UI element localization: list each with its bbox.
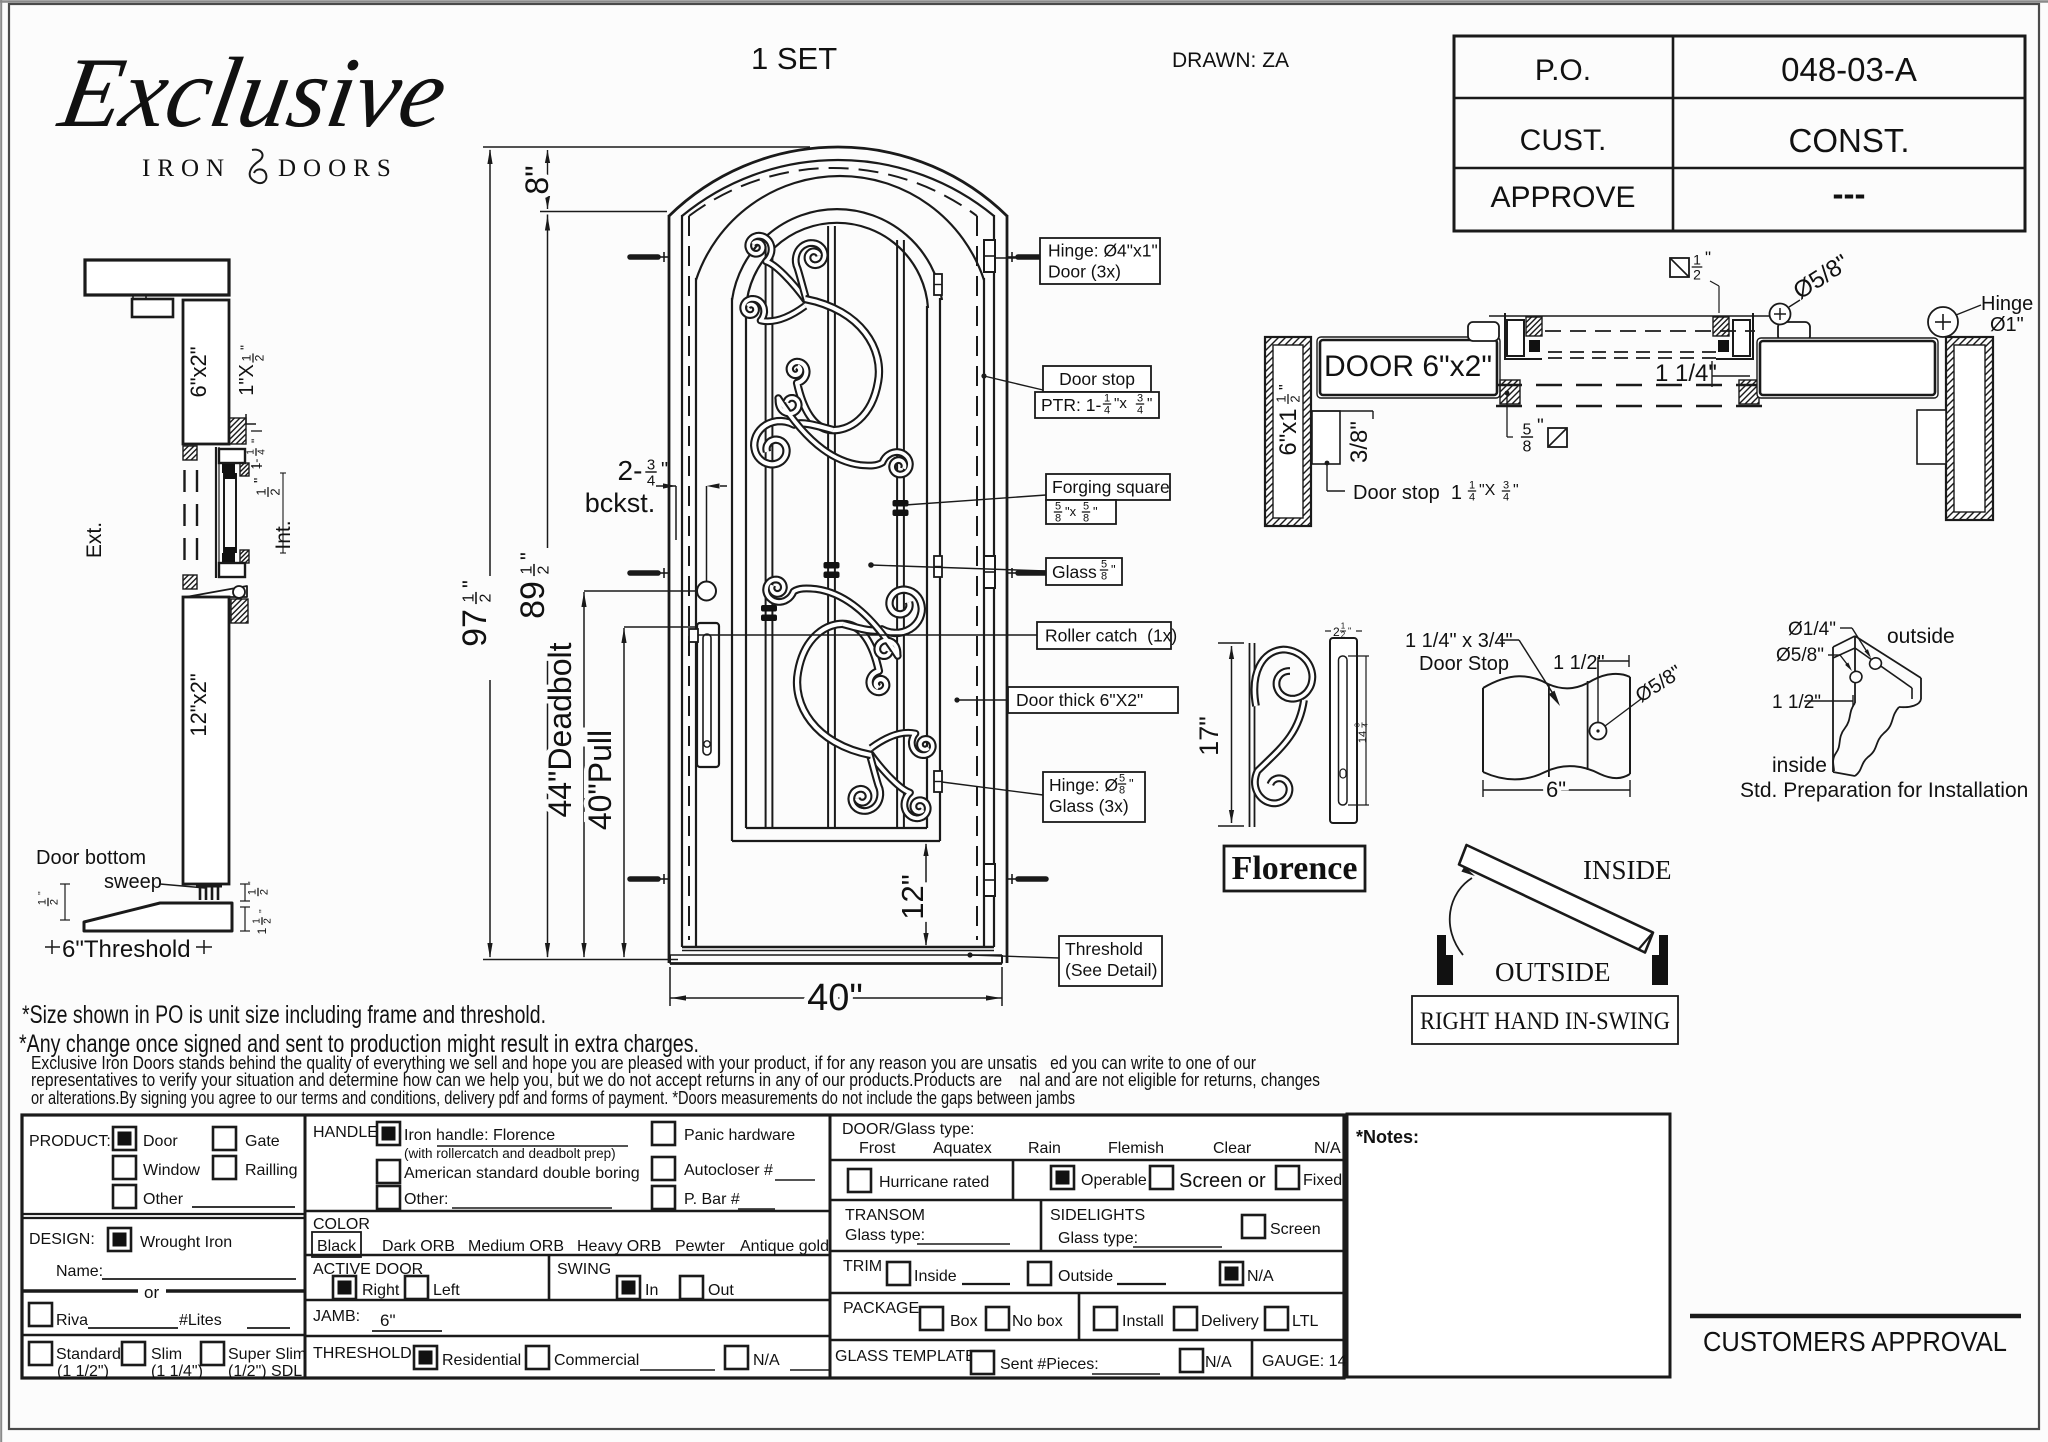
- svg-text:": ": [1537, 416, 1544, 437]
- svg-text:Door: Door: [143, 1133, 178, 1150]
- svg-text:Exclusive: Exclusive: [50, 37, 455, 148]
- svg-text:Aquatex: Aquatex: [933, 1140, 992, 1157]
- svg-text:PRODUCT:: PRODUCT:: [29, 1133, 111, 1150]
- svg-text:TRIM: TRIM: [843, 1258, 882, 1275]
- svg-text:5: 5: [1101, 559, 1107, 571]
- svg-text:"X: "X: [1479, 482, 1496, 499]
- svg-text:Screen or: Screen or: [1179, 1170, 1266, 1192]
- svg-text:8": 8": [519, 165, 555, 194]
- svg-text:Name:: Name:: [56, 1263, 103, 1280]
- svg-text:2: 2: [536, 565, 553, 574]
- svg-text:5: 5: [1083, 501, 1089, 513]
- svg-text:44"Deadbolt: 44"Deadbolt: [542, 642, 578, 817]
- svg-text:TRANSOM: TRANSOM: [845, 1207, 925, 1224]
- svg-text:": ": [251, 478, 268, 483]
- svg-text:Ext.: Ext.: [83, 522, 106, 558]
- svg-text:Flemish: Flemish: [1108, 1140, 1164, 1157]
- svg-text:2: 2: [1693, 267, 1701, 283]
- svg-text:1"X: 1"X: [236, 364, 258, 396]
- svg-text:4: 4: [647, 473, 655, 490]
- svg-text:bckst.: bckst.: [585, 488, 656, 518]
- svg-text:Black: Black: [317, 1238, 357, 1255]
- svg-text:(1 1/2"): (1 1/2"): [57, 1363, 109, 1380]
- svg-text:Right: Right: [362, 1282, 400, 1299]
- svg-text:P.O.: P.O.: [1535, 54, 1591, 87]
- svg-text:1 1/4": 1 1/4": [1655, 360, 1717, 387]
- svg-text:4: 4: [1363, 723, 1370, 727]
- svg-text:1: 1: [240, 354, 254, 361]
- svg-text:(1/2") SDL: (1/2") SDL: [228, 1363, 302, 1380]
- svg-text:DOOR 6"x2": DOOR 6"x2": [1324, 350, 1492, 383]
- svg-text:2: 2: [268, 488, 283, 495]
- svg-text:1: 1: [1693, 252, 1701, 268]
- svg-text:Box: Box: [950, 1313, 978, 1330]
- svg-text:8: 8: [1523, 439, 1532, 456]
- svg-text:*Size shown in PO is unit size: *Size shown in PO is unit size including…: [22, 1001, 546, 1029]
- svg-text:4: 4: [1503, 492, 1509, 504]
- svg-text:048-03-A: 048-03-A: [1781, 51, 1917, 88]
- svg-text:(See Detail): (See Detail): [1065, 960, 1157, 980]
- svg-text:4: 4: [257, 449, 268, 455]
- svg-text:2: 2: [478, 593, 495, 602]
- svg-text:1: 1: [247, 889, 259, 895]
- svg-text:*Notes:: *Notes:: [1356, 1127, 1419, 1147]
- svg-text:12": 12": [895, 874, 930, 920]
- svg-text:2: 2: [253, 354, 267, 361]
- svg-text:Standard: Standard: [56, 1346, 121, 1363]
- svg-text:CUSTOMERS APPROVAL: CUSTOMERS APPROVAL: [1703, 1326, 2007, 1357]
- svg-text:In: In: [645, 1282, 658, 1299]
- svg-text:N/A: N/A: [1247, 1268, 1274, 1285]
- svg-text:1: 1: [252, 918, 263, 924]
- svg-text:1: 1: [246, 449, 257, 455]
- svg-text:N/A: N/A: [753, 1352, 780, 1369]
- svg-text:Door stop 1: Door stop 1: [1353, 482, 1462, 504]
- svg-text:No box: No box: [1012, 1313, 1063, 1330]
- svg-text:"x: "x: [1065, 504, 1077, 519]
- svg-text:1: 1: [254, 488, 269, 495]
- svg-text:or alterations.By signing you: or alterations.By signing you agree to o…: [31, 1088, 1075, 1108]
- svg-text:3: 3: [647, 457, 655, 474]
- svg-text:'': '': [37, 891, 48, 895]
- svg-text:sweep: sweep: [104, 871, 162, 893]
- svg-text:COLOR: COLOR: [313, 1216, 370, 1233]
- svg-text:8: 8: [1083, 513, 1089, 525]
- svg-text:Glass type:: Glass type:: [845, 1227, 925, 1244]
- svg-text:": ": [1705, 248, 1711, 267]
- svg-text:DESIGN:: DESIGN:: [29, 1231, 95, 1248]
- svg-text:Outside: Outside: [1058, 1268, 1113, 1285]
- svg-text:1: 1: [1341, 622, 1346, 631]
- svg-text:1: 1: [461, 593, 478, 602]
- svg-text:GAUGE: 14: GAUGE: 14: [1262, 1353, 1347, 1370]
- svg-text:Door stop: Door stop: [1059, 369, 1135, 389]
- svg-text:DRAWN: ZA: DRAWN: ZA: [1172, 49, 1289, 72]
- svg-text:40": 40": [807, 977, 863, 1019]
- svg-text:1 1/2": 1 1/2": [1553, 652, 1605, 674]
- svg-text:2-: 2-: [618, 455, 643, 486]
- svg-text:P. Bar #: P. Bar #: [684, 1191, 740, 1208]
- svg-text:89: 89: [514, 581, 552, 619]
- svg-text:#Lites: #Lites: [179, 1312, 222, 1329]
- svg-text:Rain: Rain: [1028, 1140, 1061, 1157]
- svg-text:2: 2: [259, 889, 271, 895]
- svg-text:OUTSIDE: OUTSIDE: [1495, 957, 1611, 987]
- svg-text:HANDLE: HANDLE: [313, 1124, 378, 1141]
- svg-text:PACKAGE: PACKAGE: [843, 1300, 919, 1317]
- svg-text:(1 1/4"): (1 1/4"): [151, 1363, 203, 1380]
- svg-text:1 SET: 1 SET: [751, 41, 837, 76]
- svg-text:Ø1/4": Ø1/4": [1788, 619, 1836, 640]
- svg-text:'': '': [247, 881, 258, 885]
- svg-text:Door (3x): Door (3x): [1048, 262, 1121, 282]
- svg-text:": ": [1147, 395, 1152, 412]
- svg-text:Gate: Gate: [245, 1133, 280, 1150]
- svg-text:3/8": 3/8": [1346, 421, 1373, 463]
- svg-text:6": 6": [380, 1311, 396, 1330]
- svg-text:Ø5/8": Ø5/8": [1776, 645, 1824, 666]
- svg-text:Door Stop: Door Stop: [1419, 653, 1509, 675]
- svg-text:": ": [249, 439, 263, 443]
- svg-text:": ": [1513, 482, 1519, 499]
- svg-text:N/A: N/A: [1205, 1354, 1232, 1371]
- svg-text:Hinge: Hinge: [1981, 293, 2033, 315]
- svg-text:THRESHOLD: THRESHOLD: [313, 1345, 412, 1362]
- svg-text:6"Threshold: 6"Threshold: [62, 936, 191, 963]
- svg-text:8: 8: [1055, 513, 1061, 525]
- svg-text:Install: Install: [1122, 1313, 1164, 1330]
- svg-text:Glass (3x): Glass (3x): [1049, 796, 1129, 816]
- svg-text:1: 1: [255, 927, 269, 934]
- svg-text:Ø1": Ø1": [1990, 314, 2024, 336]
- svg-text:": ": [516, 552, 541, 560]
- svg-text:Other:: Other:: [404, 1191, 448, 1208]
- svg-text:Iron handle: Florence: Iron handle: Florence: [404, 1127, 555, 1144]
- svg-text:5: 5: [1119, 773, 1125, 785]
- svg-text:1 1/4" x 3/4": 1 1/4" x 3/4": [1405, 630, 1513, 652]
- svg-text:1: 1: [1469, 480, 1475, 492]
- svg-text:"x: "x: [1114, 395, 1127, 412]
- svg-text:N/A: N/A: [1314, 1140, 1341, 1157]
- svg-text:6"x1: 6"x1: [1275, 408, 1302, 455]
- svg-text:Railling: Railling: [245, 1162, 297, 1179]
- svg-text:representatives to verify your: representatives to verify your situation…: [31, 1070, 1320, 1090]
- svg-text:1: 1: [37, 899, 49, 905]
- svg-text:Clear: Clear: [1213, 1140, 1252, 1157]
- svg-text:Autocloser #: Autocloser #: [684, 1162, 773, 1179]
- svg-text:1 1/2": 1 1/2": [1772, 692, 1821, 713]
- svg-text:Hinge: Ø4"x1": Hinge: Ø4"x1": [1048, 241, 1158, 261]
- svg-text:6"x2": 6"x2": [186, 346, 211, 397]
- svg-text:SWING: SWING: [557, 1261, 611, 1278]
- svg-text:IRON: IRON: [142, 155, 231, 182]
- svg-text:SIDELIGHTS: SIDELIGHTS: [1050, 1207, 1145, 1224]
- svg-text:Antique gold: Antique gold: [740, 1238, 829, 1255]
- svg-text:": ": [458, 580, 483, 588]
- svg-text:": ": [1129, 776, 1134, 791]
- svg-text:Screen: Screen: [1270, 1221, 1321, 1238]
- svg-text:Door bottom: Door bottom: [36, 847, 146, 869]
- svg-text:Operable: Operable: [1081, 1172, 1147, 1189]
- svg-text:Out: Out: [708, 1282, 734, 1299]
- svg-text:5: 5: [1055, 501, 1061, 513]
- svg-text:Heavy ORB: Heavy ORB: [577, 1238, 661, 1255]
- svg-text:97: 97: [456, 609, 494, 647]
- svg-text:14: 14: [1357, 731, 1369, 743]
- svg-text:8: 8: [1119, 785, 1125, 797]
- svg-text:3: 3: [1355, 723, 1362, 727]
- svg-text:1-: 1-: [249, 459, 263, 470]
- svg-text:Florence: Florence: [1232, 850, 1358, 887]
- svg-text:17": 17": [1194, 716, 1224, 756]
- svg-text:1: 1: [1104, 393, 1110, 405]
- svg-text:2: 2: [1341, 631, 1346, 640]
- svg-text:Left: Left: [433, 1282, 460, 1299]
- svg-text:GLASS TEMPLATE: GLASS TEMPLATE: [835, 1348, 976, 1365]
- svg-text:1: 1: [519, 565, 536, 574]
- svg-text:2: 2: [49, 899, 61, 905]
- svg-text:Int.: Int.: [272, 520, 295, 549]
- svg-text:DOORS: DOORS: [278, 155, 398, 182]
- svg-text:Inside: Inside: [914, 1268, 957, 1285]
- svg-text:Medium ORB: Medium ORB: [468, 1238, 564, 1255]
- svg-text:Other: Other: [143, 1191, 184, 1208]
- svg-text:": ": [1111, 562, 1116, 577]
- svg-text:Fixed: Fixed: [1303, 1172, 1342, 1189]
- svg-text:CUST.: CUST.: [1520, 124, 1607, 157]
- svg-text:Frost: Frost: [859, 1140, 896, 1157]
- svg-text:4: 4: [1104, 405, 1110, 417]
- svg-text:APPROVE: APPROVE: [1490, 181, 1635, 214]
- svg-text:CONST.: CONST.: [1788, 122, 1909, 159]
- svg-text:Pewter: Pewter: [675, 1238, 725, 1255]
- svg-text:Delivery: Delivery: [1201, 1313, 1259, 1330]
- svg-text:Std. Preparation for Installat: Std. Preparation for Installation: [1740, 779, 2028, 802]
- svg-text:Wrought Iron: Wrought Iron: [140, 1234, 232, 1251]
- svg-text:Panic hardware: Panic hardware: [684, 1127, 795, 1144]
- svg-text:RIGHT HAND IN-SWING: RIGHT HAND IN-SWING: [1420, 1008, 1670, 1035]
- svg-text:---: ---: [1833, 175, 1866, 212]
- svg-text:'': '': [258, 909, 269, 913]
- svg-text:Window: Window: [143, 1162, 200, 1179]
- svg-text:Glass: Glass: [1052, 562, 1097, 582]
- svg-text:(with rollercatch and deadbolt: (with rollercatch and deadbolt prep): [404, 1146, 616, 1161]
- svg-text:Slim: Slim: [151, 1346, 182, 1363]
- svg-text:2: 2: [263, 918, 274, 924]
- svg-text:40"Pull: 40"Pull: [582, 730, 618, 830]
- svg-text:2: 2: [1333, 625, 1340, 639]
- svg-text:3: 3: [1137, 393, 1143, 405]
- svg-text:12"x2": 12"x2": [186, 673, 211, 736]
- svg-text:2: 2: [1288, 395, 1303, 402]
- svg-text:Sent #Pieces:: Sent #Pieces:: [1000, 1356, 1099, 1373]
- svg-text:8: 8: [1101, 571, 1107, 583]
- svg-text:or: or: [144, 1283, 159, 1302]
- svg-text:JAMB:: JAMB:: [313, 1308, 360, 1325]
- svg-text:LTL: LTL: [1292, 1313, 1318, 1330]
- svg-text:Forging square: Forging square: [1052, 477, 1170, 497]
- svg-text:Hurricane rated: Hurricane rated: [879, 1174, 989, 1191]
- svg-text:5: 5: [1523, 422, 1532, 439]
- svg-text:": ": [237, 345, 253, 350]
- svg-text:DOOR/Glass type:: DOOR/Glass type:: [842, 1121, 974, 1138]
- svg-text:INSIDE: INSIDE: [1583, 855, 1672, 885]
- svg-text:4: 4: [1137, 405, 1143, 417]
- svg-text:Hinge: Ø: Hinge: Ø: [1049, 775, 1118, 795]
- svg-text:Commercial: Commercial: [554, 1352, 639, 1369]
- svg-text:Glass type:: Glass type:: [1058, 1230, 1138, 1247]
- svg-text:": ": [1277, 384, 1294, 390]
- svg-text:3: 3: [1503, 480, 1509, 492]
- svg-text:inside: inside: [1772, 754, 1827, 777]
- svg-text:": ": [1348, 626, 1351, 636]
- svg-text:Door thick 6"X2": Door thick 6"X2": [1016, 690, 1143, 710]
- svg-text:Riva: Riva: [56, 1312, 88, 1329]
- svg-text:1: 1: [1274, 395, 1289, 402]
- svg-text:6": 6": [1546, 777, 1566, 802]
- svg-text:Dark ORB: Dark ORB: [382, 1238, 455, 1255]
- svg-text:Roller catch (1x): Roller catch (1x): [1045, 626, 1177, 646]
- svg-text:American standard double borin: American standard double boring: [404, 1165, 640, 1182]
- svg-text:Residential: Residential: [442, 1352, 521, 1369]
- svg-text:Threshold: Threshold: [1065, 939, 1143, 959]
- svg-text:Super Slim: Super Slim: [228, 1346, 306, 1363]
- svg-text:outside: outside: [1887, 625, 1955, 648]
- svg-text:": ": [661, 459, 668, 481]
- svg-text:PTR: 1-: PTR: 1-: [1041, 395, 1101, 415]
- svg-text:4: 4: [1469, 492, 1475, 504]
- svg-text:": ": [1093, 504, 1098, 519]
